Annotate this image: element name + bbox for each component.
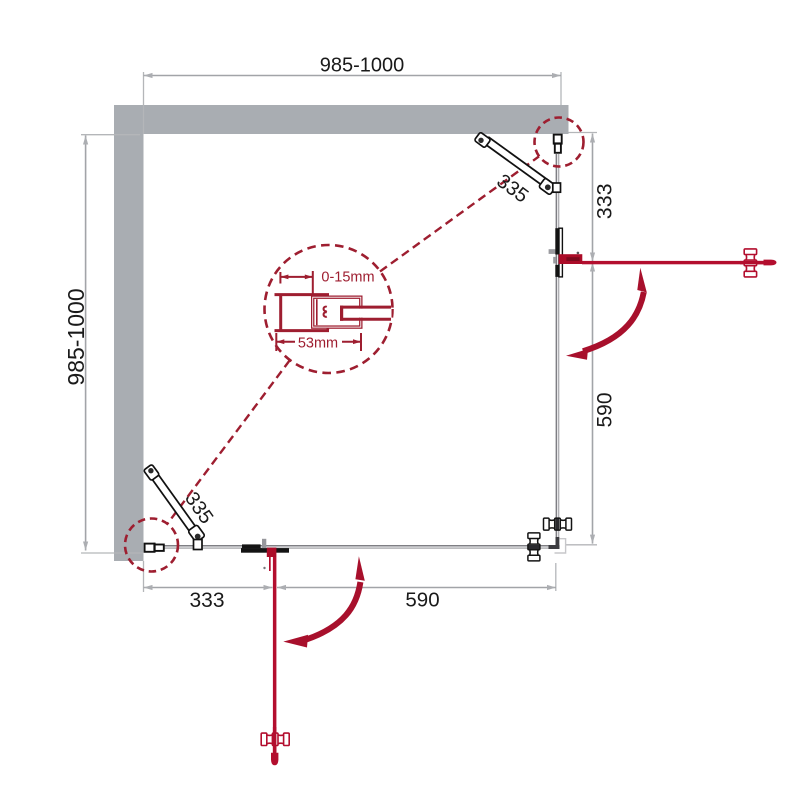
svg-text:590: 590 (405, 589, 439, 612)
svg-text:333: 333 (189, 589, 224, 612)
svg-text:985-1000: 985-1000 (320, 55, 405, 77)
svg-text:333: 333 (593, 183, 617, 219)
svg-text:985-1000: 985-1000 (63, 288, 89, 385)
svg-text:0-15mm: 0-15mm (321, 269, 374, 285)
svg-text:53mm: 53mm (298, 336, 338, 352)
svg-text:335: 335 (492, 170, 532, 208)
svg-text:590: 590 (593, 392, 616, 427)
